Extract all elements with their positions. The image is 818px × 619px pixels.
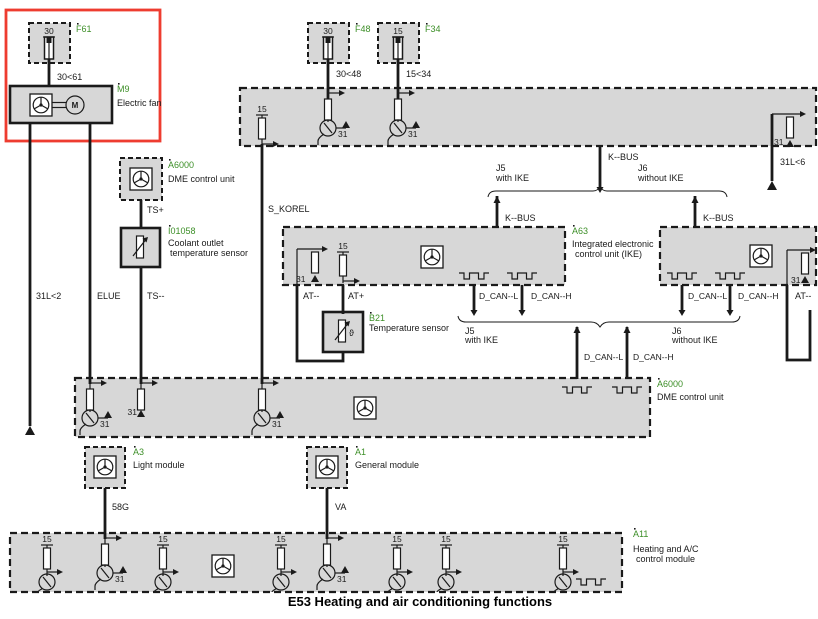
wire-label: 30<48 xyxy=(336,69,361,79)
component-name: temperature sensor xyxy=(170,248,248,258)
wire-label: AT+ xyxy=(348,291,364,301)
fan-icon xyxy=(421,246,443,268)
fan-icon xyxy=(354,397,376,419)
wire-label: K--BUS xyxy=(505,213,536,223)
fuse-icon xyxy=(394,37,403,59)
component-id-a6000-bottom: A6000 xyxy=(657,379,683,389)
component-name: Integrated electronic xyxy=(572,239,654,249)
component-name: Electric fan xyxy=(117,98,162,108)
fan-icon xyxy=(30,94,52,116)
component-name: DME control unit xyxy=(657,392,724,402)
fan-icon xyxy=(94,456,116,478)
wire-label: 58G xyxy=(112,502,129,512)
pin-label: 15 xyxy=(257,104,267,114)
component-id-a11: A11 xyxy=(633,529,648,539)
ground-label: 31 xyxy=(296,274,306,284)
wire-label: 30<61 xyxy=(57,72,82,82)
wire-label: 31L<2 xyxy=(36,291,61,301)
wire-label: D_CAN--H xyxy=(738,291,779,301)
junction-label: J5 xyxy=(496,163,506,173)
wire-label: ELUE xyxy=(97,291,121,301)
pin-label: 15 xyxy=(42,534,52,544)
pin-label: 15 xyxy=(158,534,168,544)
component-id-f34: F34 xyxy=(425,24,441,34)
motor-letter: M xyxy=(72,101,79,110)
wire-label: AT-- xyxy=(795,291,811,301)
pin-label: 15 xyxy=(392,534,402,544)
component-name: General module xyxy=(355,460,419,470)
wire-label: D_CAN--H xyxy=(633,352,674,362)
pin-label: 15 xyxy=(558,534,568,544)
junction-label: without IKE xyxy=(637,173,684,183)
junction-label: with IKE xyxy=(464,335,498,345)
component-id-a1: A1 xyxy=(355,447,366,457)
junction-label: J6 xyxy=(638,163,648,173)
component-id-f61: F61 xyxy=(76,24,92,34)
component-name: Heating and A/C xyxy=(633,544,699,554)
ground-label: 31 xyxy=(128,407,138,417)
component-name: control unit (IKE) xyxy=(575,249,642,259)
component-name: Light module xyxy=(133,460,185,470)
wire-label: S_KOREL xyxy=(268,204,310,214)
fuse-icon xyxy=(324,37,333,59)
fuse-pin: 30 xyxy=(44,26,54,36)
fuse-pin: 30 xyxy=(323,26,333,36)
fan-icon xyxy=(212,555,234,577)
pin-label: 15 xyxy=(441,534,451,544)
wire-label: D_CAN--H xyxy=(531,291,572,301)
component-name: DME control unit xyxy=(168,174,235,184)
ground-label: 31 xyxy=(338,129,348,139)
wire-label: K--BUS xyxy=(608,152,639,162)
fuse-pin: 15 xyxy=(393,26,403,36)
ground-symbol xyxy=(25,426,35,435)
wire-label: D_CAN--L xyxy=(688,291,727,301)
component-id-m9: M9 xyxy=(117,84,130,94)
wire-label: 15<34 xyxy=(406,69,431,79)
wire-label: K--BUS xyxy=(703,213,734,223)
wiring-diagram: M xyxy=(0,0,818,619)
component-name: Coolant outlet xyxy=(168,238,224,248)
diagram-canvas: M xyxy=(0,0,818,619)
fan-icon xyxy=(316,456,338,478)
electric-fan-box xyxy=(10,86,112,123)
junction-label: without IKE xyxy=(671,335,718,345)
wire-label: AT-- xyxy=(303,291,319,301)
fuse-icon xyxy=(45,37,54,59)
component-id-b21: B21 xyxy=(369,313,385,323)
wire-label: TS-- xyxy=(147,291,165,301)
wire-label: TS+ xyxy=(147,205,164,215)
component-name: control module xyxy=(636,554,695,564)
component-id-f48: F48 xyxy=(355,24,371,34)
component-name: Temperature sensor xyxy=(369,323,449,333)
fan-icon xyxy=(130,168,152,190)
wire-label: 31L<6 xyxy=(780,157,805,167)
junction-label: with IKE xyxy=(495,173,529,183)
ground-label: 31 xyxy=(337,574,347,584)
wire-label: VA xyxy=(335,502,346,512)
component-boxes xyxy=(10,23,816,592)
pin-label: 15 xyxy=(338,241,348,251)
component-id-i01058: I01058 xyxy=(168,226,196,236)
component-id-a63: A63 xyxy=(572,226,588,236)
ground-label: 31 xyxy=(408,129,418,139)
wire-label: D_CAN--L xyxy=(479,291,518,301)
ground-label: 31 xyxy=(272,419,282,429)
component-id-a6000-top: A6000 xyxy=(168,160,194,170)
pin-label: 15 xyxy=(276,534,286,544)
component-id-a3: A3 xyxy=(133,447,144,457)
ground-label: 31 xyxy=(100,419,110,429)
wire-label: D_CAN--L xyxy=(584,352,623,362)
diagram-title: E53 Heating and air conditioning functio… xyxy=(288,594,552,609)
ground-label: 31 xyxy=(115,574,125,584)
fan-icon xyxy=(750,245,772,267)
ground-symbol xyxy=(767,181,777,190)
ground-label: 31 xyxy=(774,137,784,147)
ground-label: 31 xyxy=(791,275,801,285)
theta-symbol: ϑ xyxy=(349,328,354,338)
